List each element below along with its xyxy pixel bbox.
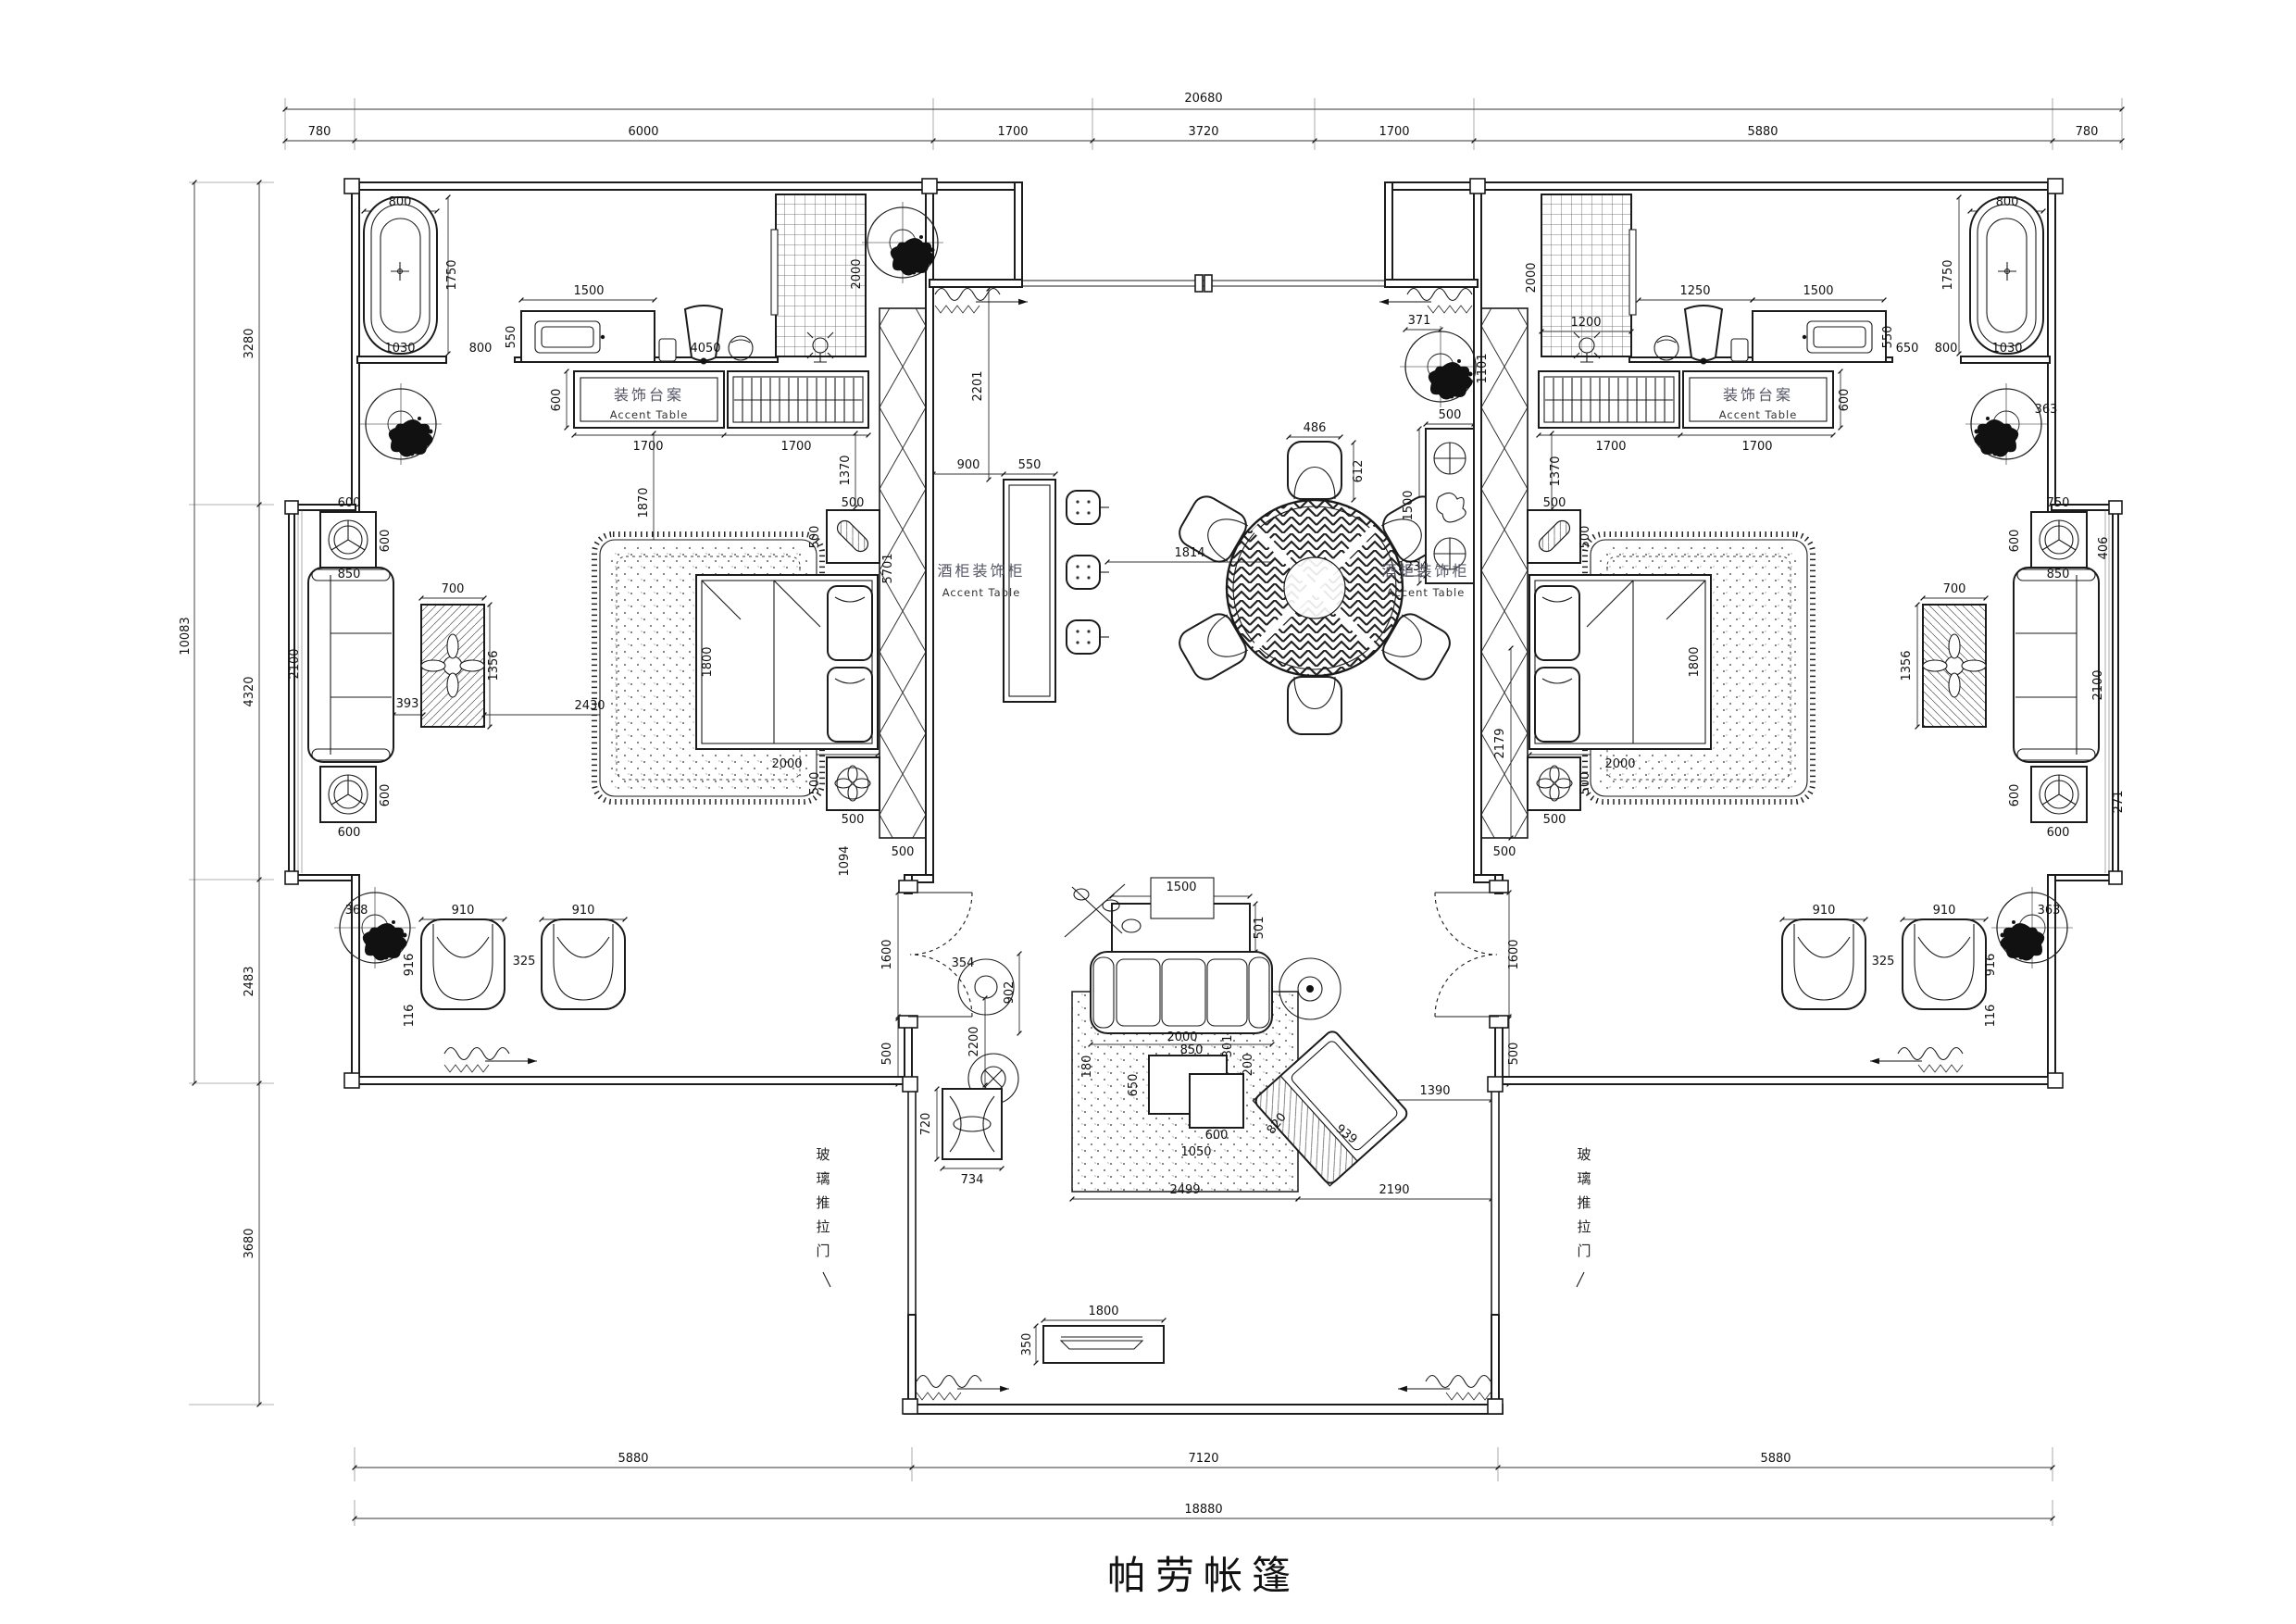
dim-label: 500 xyxy=(1578,772,1592,795)
dim-label: 910 xyxy=(1933,904,1956,918)
dim-label: 1356 xyxy=(1900,650,1914,681)
glass-door-char: 拉 xyxy=(1577,1218,1591,1235)
deco-cabinet-label-cn: 酒柜装饰柜 xyxy=(937,562,1025,580)
dim-label: 500 xyxy=(1439,408,1462,422)
accent-table-label-cn: 装饰台案 xyxy=(614,386,684,404)
dim-label: 800 xyxy=(1996,195,2019,209)
dim-label: 371 xyxy=(1408,314,1431,328)
curtain xyxy=(1398,1376,1491,1401)
barrel-chair xyxy=(421,919,505,1009)
bathtub xyxy=(364,197,437,354)
dim-label: 1094 xyxy=(838,845,852,876)
dim-label: 800 xyxy=(1935,342,1958,356)
dim-label: 2499 xyxy=(1169,1183,1200,1197)
bar-stools xyxy=(1067,491,1109,654)
dim-label: 2201 xyxy=(971,370,985,401)
dim-label: 612 xyxy=(1352,460,1366,483)
dim-label: 910 xyxy=(1813,904,1836,918)
dim-label: 550 xyxy=(1881,326,1895,349)
floor-plan-svg: 20680 780 6000 1700 3720 1700 5880 780 1… xyxy=(0,0,2296,1624)
dim-label: 500 xyxy=(1493,845,1516,859)
dim-label: 363 xyxy=(2038,904,2061,918)
dim-label: 850 xyxy=(338,568,361,581)
tv-console xyxy=(1043,1326,1164,1363)
dim-label: 2000 xyxy=(1604,757,1635,771)
dim-label: 5880 xyxy=(1747,125,1778,139)
dim-label: 1750 xyxy=(1941,259,1955,290)
dim-label: 3280 xyxy=(243,328,256,358)
dim-label: 1600 xyxy=(880,939,894,969)
glass-door-char: 璃 xyxy=(816,1170,830,1187)
dim-label: 750 xyxy=(2047,496,2070,510)
dim-label: 1500 xyxy=(1402,490,1416,520)
dim-label: 2179 xyxy=(1493,728,1507,758)
sofa-console xyxy=(1065,878,1250,954)
dim-label: 600 xyxy=(550,389,564,412)
dim-label: 910 xyxy=(572,904,595,918)
dim-label: 1700 xyxy=(1595,440,1626,454)
glass-door-label: 玻 璃 推 拉 门 xyxy=(816,1146,830,1259)
dim-label: 500 xyxy=(1507,1043,1521,1066)
dim-label: 600 xyxy=(2008,530,2022,553)
dining-chair xyxy=(1288,677,1341,734)
curtain xyxy=(917,1376,1009,1401)
dining-table xyxy=(1227,500,1403,676)
glass-door-char: 推 xyxy=(816,1194,830,1211)
dim-label: 916 xyxy=(403,954,417,977)
drawing-title: 帕劳帐篷 xyxy=(1107,1553,1300,1598)
dim-label: 2483 xyxy=(243,966,256,996)
coffee-table xyxy=(421,605,484,727)
dim-label: 2000 xyxy=(1525,262,1539,293)
glass-door-char: 推 xyxy=(1577,1194,1591,1211)
dim-label: 600 xyxy=(338,496,361,510)
dim-label: 2200 xyxy=(967,1026,981,1056)
dim-label: 500 xyxy=(1543,813,1566,827)
dim-label: 5880 xyxy=(1760,1452,1791,1466)
curtain xyxy=(444,1048,537,1073)
dim-label: 1700 xyxy=(997,125,1028,139)
dim-label: 501 xyxy=(1253,917,1267,940)
dim-label: 2000 xyxy=(1167,1031,1197,1044)
deco-cabinet-label-cn: 酒柜装饰柜 xyxy=(1381,562,1469,580)
dim-label: 700 xyxy=(1943,582,1966,596)
bed xyxy=(696,575,878,749)
bay-sofa xyxy=(308,568,393,762)
dim-label: 2000 xyxy=(850,258,864,289)
dim-label: 116 xyxy=(1984,1005,1998,1028)
dim-label: 800 xyxy=(389,195,412,209)
dim-label: 2100 xyxy=(288,648,302,679)
double-door xyxy=(899,881,972,1028)
glass-door-char: 玻 xyxy=(1577,1146,1591,1163)
dim-label: 1500 xyxy=(1803,284,1833,298)
dim-label: 4050 xyxy=(690,342,720,356)
dim-label: 1700 xyxy=(632,440,663,454)
dim-label: 500 xyxy=(1543,496,1566,510)
accent-table-label-en: Accent Table xyxy=(1719,408,1798,421)
dim-label: 3720 xyxy=(1188,125,1218,139)
dim-label: 2100 xyxy=(2091,669,2105,700)
leader-line xyxy=(823,1272,830,1287)
dim-label: 18880 xyxy=(1184,1503,1222,1517)
dim-label: 800 xyxy=(469,342,493,356)
side-table xyxy=(320,767,376,822)
dim-label: 1700 xyxy=(780,440,811,454)
dim-label: 1030 xyxy=(384,342,415,356)
dim-label: 500 xyxy=(842,813,865,827)
dim-label: 1800 xyxy=(701,646,715,677)
dim-label: 1500 xyxy=(1166,881,1196,894)
dim-label: 600 xyxy=(2008,784,2022,807)
dim-label: 2000 xyxy=(771,757,802,771)
deco-cabinet-label-en: Accent Table xyxy=(1387,586,1466,599)
dim-label: 500 xyxy=(880,1043,894,1066)
floor-lamp xyxy=(1279,958,1341,1019)
dim-label: 4320 xyxy=(243,676,256,706)
dim-label: 916 xyxy=(1984,954,1998,977)
dim-label: 1101 xyxy=(1476,353,1490,383)
dim-label: 6000 xyxy=(628,125,658,139)
dim-label: 271 xyxy=(2112,791,2126,814)
glass-door-char: 璃 xyxy=(1577,1170,1591,1187)
dim-label: 550 xyxy=(1018,458,1042,472)
dim-label: 1870 xyxy=(637,487,651,518)
floor-plan-sheet: 20680 780 6000 1700 3720 1700 5880 780 1… xyxy=(0,0,2296,1624)
dim-label: 1356 xyxy=(487,650,501,681)
dim-label: 180 xyxy=(1080,1056,1094,1079)
glass-door-label: 玻 璃 推 拉 门 xyxy=(1577,1146,1591,1259)
deco-cabinet-label-en: Accent Table xyxy=(942,586,1021,599)
dim-label: 780 xyxy=(2076,125,2099,139)
leader-line xyxy=(1577,1272,1584,1287)
barrel-chair xyxy=(542,919,625,1009)
dim-label: 393 xyxy=(396,697,419,711)
dim-label: 1050 xyxy=(1180,1145,1211,1159)
side-table xyxy=(942,1089,1002,1159)
dim-label: 1814 xyxy=(1174,546,1204,560)
dim-label: 734 xyxy=(961,1173,984,1187)
dim-label: 7120 xyxy=(1188,1452,1218,1466)
dim-label: 116 xyxy=(403,1005,417,1028)
dim-label: 600 xyxy=(338,826,361,840)
wing-furniture xyxy=(308,194,972,1072)
dim-label: 700 xyxy=(442,582,465,596)
plant xyxy=(360,383,442,465)
dim-label: 600 xyxy=(1838,389,1852,412)
sofa xyxy=(1091,952,1272,1033)
curtain xyxy=(1379,289,1472,314)
dim-label: 600 xyxy=(2047,826,2070,840)
dim-label: 780 xyxy=(308,125,331,139)
nightstand xyxy=(827,510,880,563)
dim-label: 1030 xyxy=(1991,342,2022,356)
dim-label: 363 xyxy=(2035,403,2058,417)
dim-label: 10083 xyxy=(179,617,193,655)
dim-label: 1800 xyxy=(1088,1305,1118,1318)
dining-chair xyxy=(1288,442,1341,499)
dim-label: 500 xyxy=(842,496,865,510)
dim-label: 325 xyxy=(1872,955,1895,968)
accent-table-label-en: Accent Table xyxy=(610,408,689,421)
glass-door-char: 拉 xyxy=(816,1218,830,1235)
dim-label: 910 xyxy=(452,904,475,918)
dim-label: 1700 xyxy=(1741,440,1772,454)
plant xyxy=(1400,326,1481,407)
dim-label: 1600 xyxy=(1507,939,1521,969)
curtain xyxy=(935,289,1028,314)
dim-label: 902 xyxy=(1003,981,1017,1005)
dim-label: 350 xyxy=(1020,1333,1034,1356)
dim-label: 500 xyxy=(1578,526,1592,549)
dim-label: 500 xyxy=(892,845,915,859)
dim-label: 325 xyxy=(513,955,536,968)
dim-label: 1500 xyxy=(573,284,604,298)
dim-label: 354 xyxy=(952,956,975,970)
dim-label: 600 xyxy=(379,784,393,807)
dim-label: 650 xyxy=(1896,342,1919,356)
dim-label: 2190 xyxy=(1379,1183,1409,1197)
dim-label: 3680 xyxy=(243,1228,256,1258)
glass-door-char: 门 xyxy=(1577,1243,1591,1259)
glass-door-char: 门 xyxy=(816,1243,830,1259)
glass-door-char: 玻 xyxy=(816,1146,830,1163)
dim-label: 650 xyxy=(1127,1074,1141,1097)
side-table xyxy=(320,512,376,568)
dim-label: 1800 xyxy=(1688,646,1702,677)
dim-label: 1700 xyxy=(1379,125,1409,139)
dim-label: 1390 xyxy=(1419,1084,1450,1098)
dim-label: 5880 xyxy=(618,1452,648,1466)
dim-label: 2430 xyxy=(574,699,605,713)
dim-label: 5701 xyxy=(881,553,895,583)
dim-label: 500 xyxy=(808,772,822,795)
dim-label: 900 xyxy=(957,458,980,472)
dim-label: 550 xyxy=(505,326,518,349)
dim-label: 368 xyxy=(345,904,368,918)
wing-furniture-mirrored xyxy=(1435,194,2099,1072)
dim-label: 301 xyxy=(1221,1035,1235,1058)
dim-label: 1200 xyxy=(1570,316,1601,330)
dim-label: 1370 xyxy=(839,455,853,485)
dim-label: 20680 xyxy=(1184,92,1222,106)
nightstand xyxy=(827,757,880,810)
dim-label: 1370 xyxy=(1549,456,1563,486)
dim-label: 600 xyxy=(1205,1129,1229,1143)
dim-label: 1250 xyxy=(1679,284,1710,298)
dim-label: 1750 xyxy=(445,259,459,290)
kitchenette-counter xyxy=(1426,429,1474,583)
dim-label: 720 xyxy=(919,1113,933,1136)
dim-label: 406 xyxy=(2097,537,2111,560)
dim-label: 486 xyxy=(1304,421,1327,435)
dim-label: 850 xyxy=(2047,568,2070,581)
dim-label: 500 xyxy=(808,526,822,549)
walls-layer xyxy=(285,179,2122,1414)
dim-label: 200 xyxy=(1242,1054,1255,1077)
accent-table-label-cn: 装饰台案 xyxy=(1723,386,1793,404)
dim-label: 850 xyxy=(1180,1043,1204,1057)
dim-label: 600 xyxy=(379,530,393,553)
